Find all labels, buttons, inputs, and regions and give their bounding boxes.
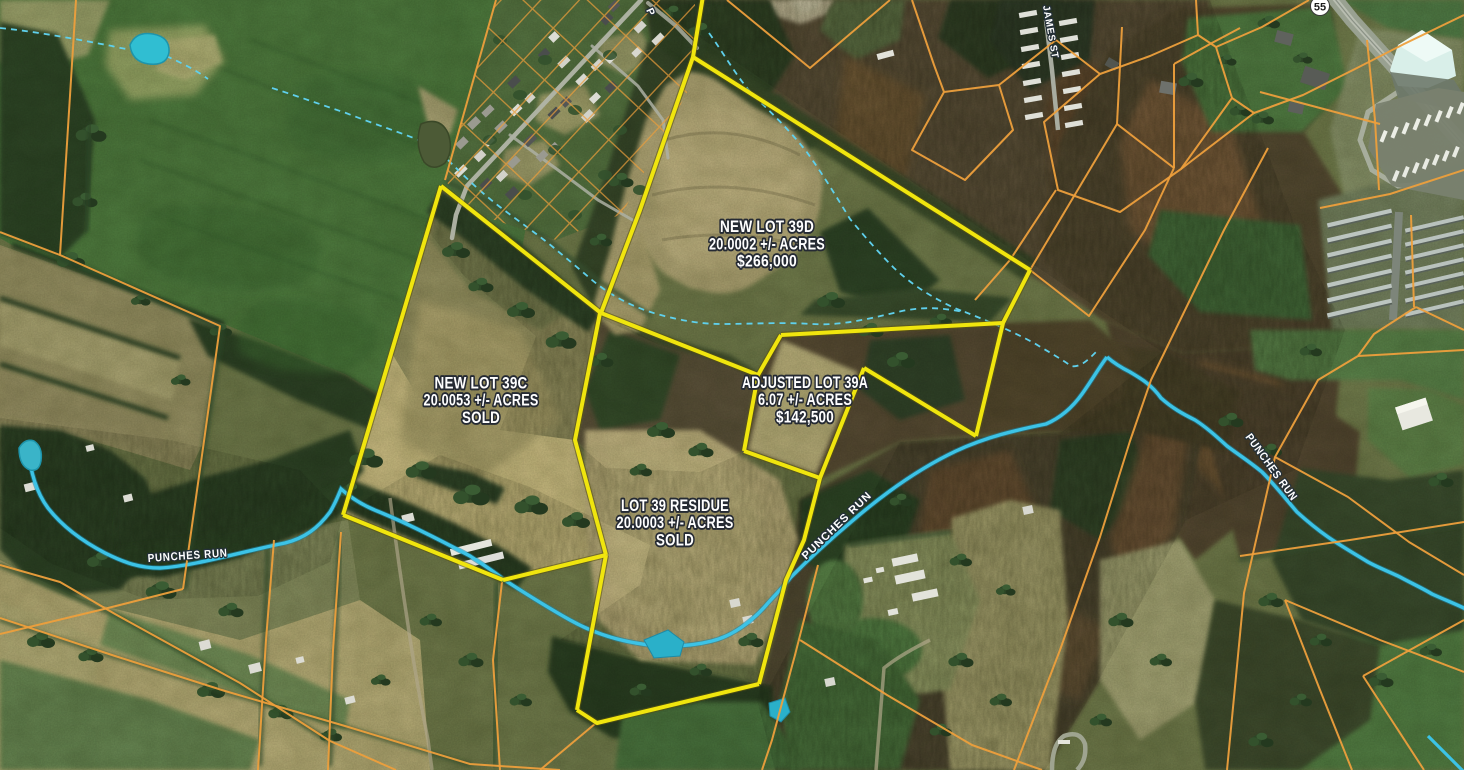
svg-text:NEW LOT 39C: NEW LOT 39C: [435, 374, 528, 392]
svg-text:20.0002 +/- ACRES: 20.0002 +/- ACRES: [709, 235, 825, 253]
svg-text:ADJUSTED LOT 39A: ADJUSTED LOT 39A: [742, 374, 868, 392]
svg-text:55: 55: [1314, 2, 1326, 14]
svg-text:6.07 +/- ACRES: 6.07 +/- ACRES: [758, 391, 852, 409]
svg-text:SOLD: SOLD: [656, 531, 694, 549]
svg-text:20.0003 +/- ACRES: 20.0003 +/- ACRES: [617, 514, 734, 532]
svg-text:LOT 39 RESIDUE: LOT 39 RESIDUE: [621, 497, 729, 515]
svg-text:20.0053 +/- ACRES: 20.0053 +/- ACRES: [424, 392, 539, 410]
svg-text:$266,000: $266,000: [737, 253, 797, 271]
svg-text:SOLD: SOLD: [462, 409, 500, 427]
svg-text:NEW LOT 39D: NEW LOT 39D: [720, 218, 814, 236]
svg-text:$142,500: $142,500: [776, 408, 834, 426]
